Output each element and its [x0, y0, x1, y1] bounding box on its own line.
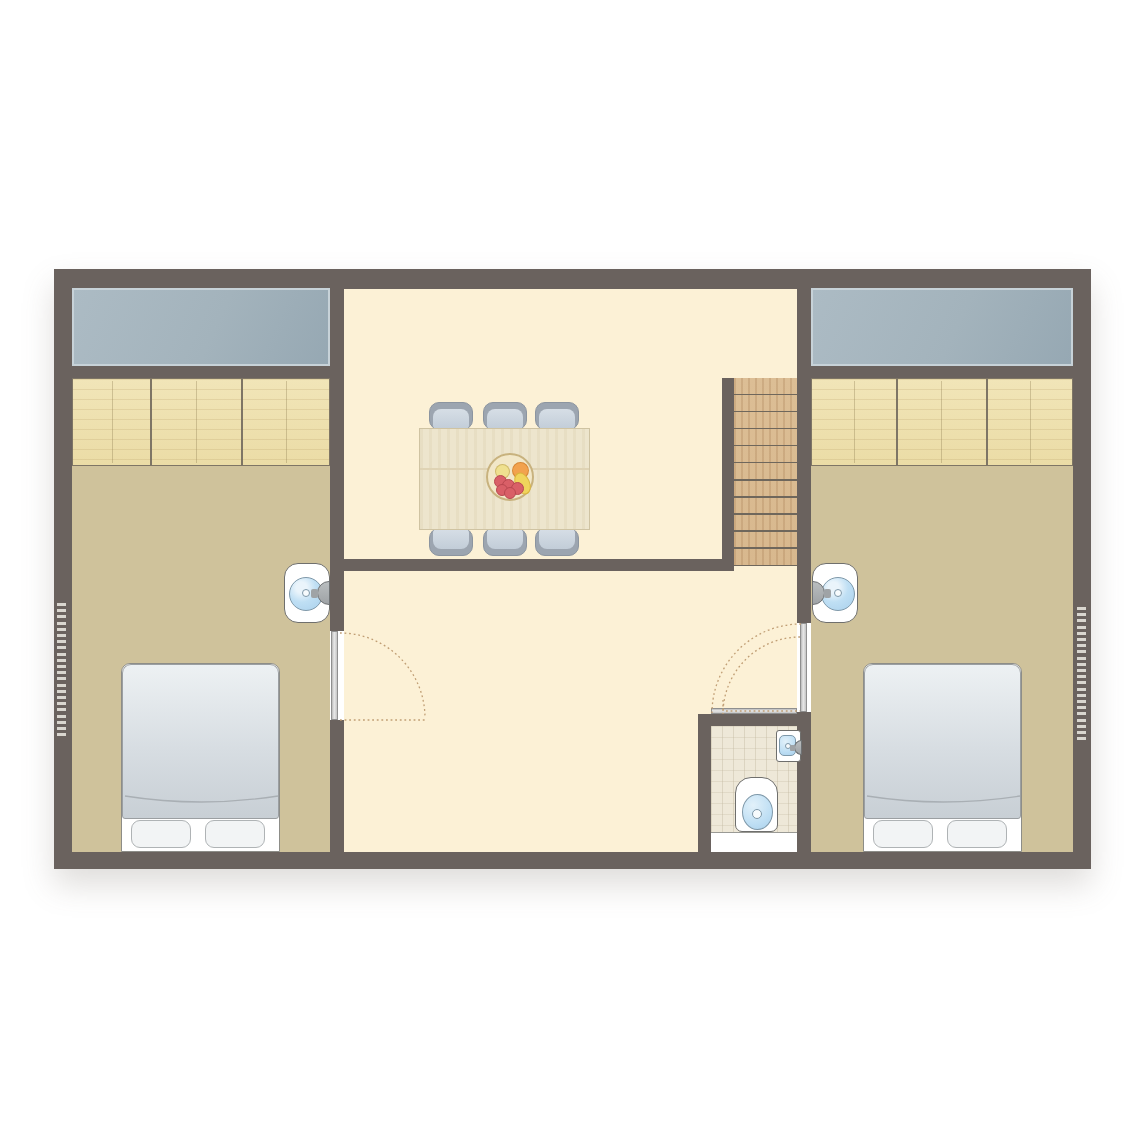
bathroom-door-arc	[723, 637, 800, 714]
bedroom-left-door-arc	[340, 633, 425, 718]
door-swing-arcs	[0, 0, 1145, 1145]
bedroom-right-door-arc	[712, 624, 801, 713]
floor-plan-canvas	[0, 0, 1145, 1145]
